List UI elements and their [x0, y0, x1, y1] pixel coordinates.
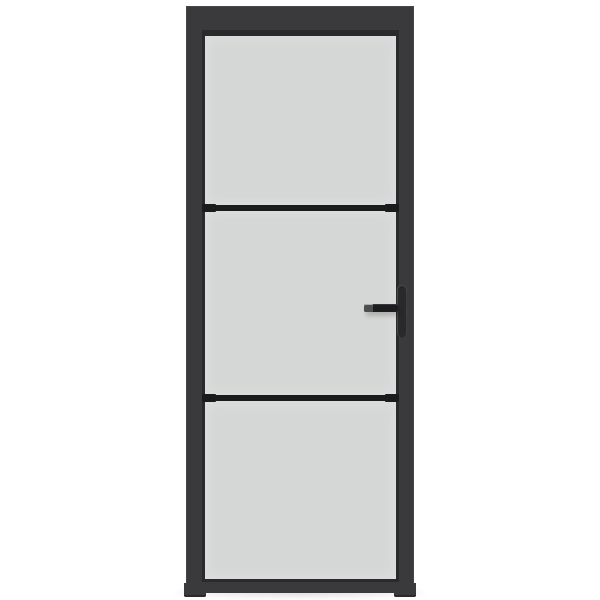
glazing-bar-end-cap-right [385, 204, 399, 212]
glazing-bar-end-cap-right [385, 394, 399, 402]
glass-panel-middle [205, 211, 396, 395]
glazing-bar-end-cap-left [202, 394, 216, 402]
glazing-bar-lower [205, 395, 396, 401]
door-handle-lever-tip [364, 304, 373, 312]
glazing-bar-upper [205, 205, 396, 211]
door-handle-lever [364, 304, 398, 312]
glazing-bar-end-cap-left [202, 204, 216, 212]
door-foot-right [394, 583, 416, 597]
glass-panel-top [205, 36, 396, 205]
glass-panel-bottom [205, 401, 396, 579]
door-product-photo [0, 0, 600, 600]
door [186, 6, 414, 593]
door-handle-backplate [397, 285, 407, 338]
door-foot-left [184, 583, 206, 597]
